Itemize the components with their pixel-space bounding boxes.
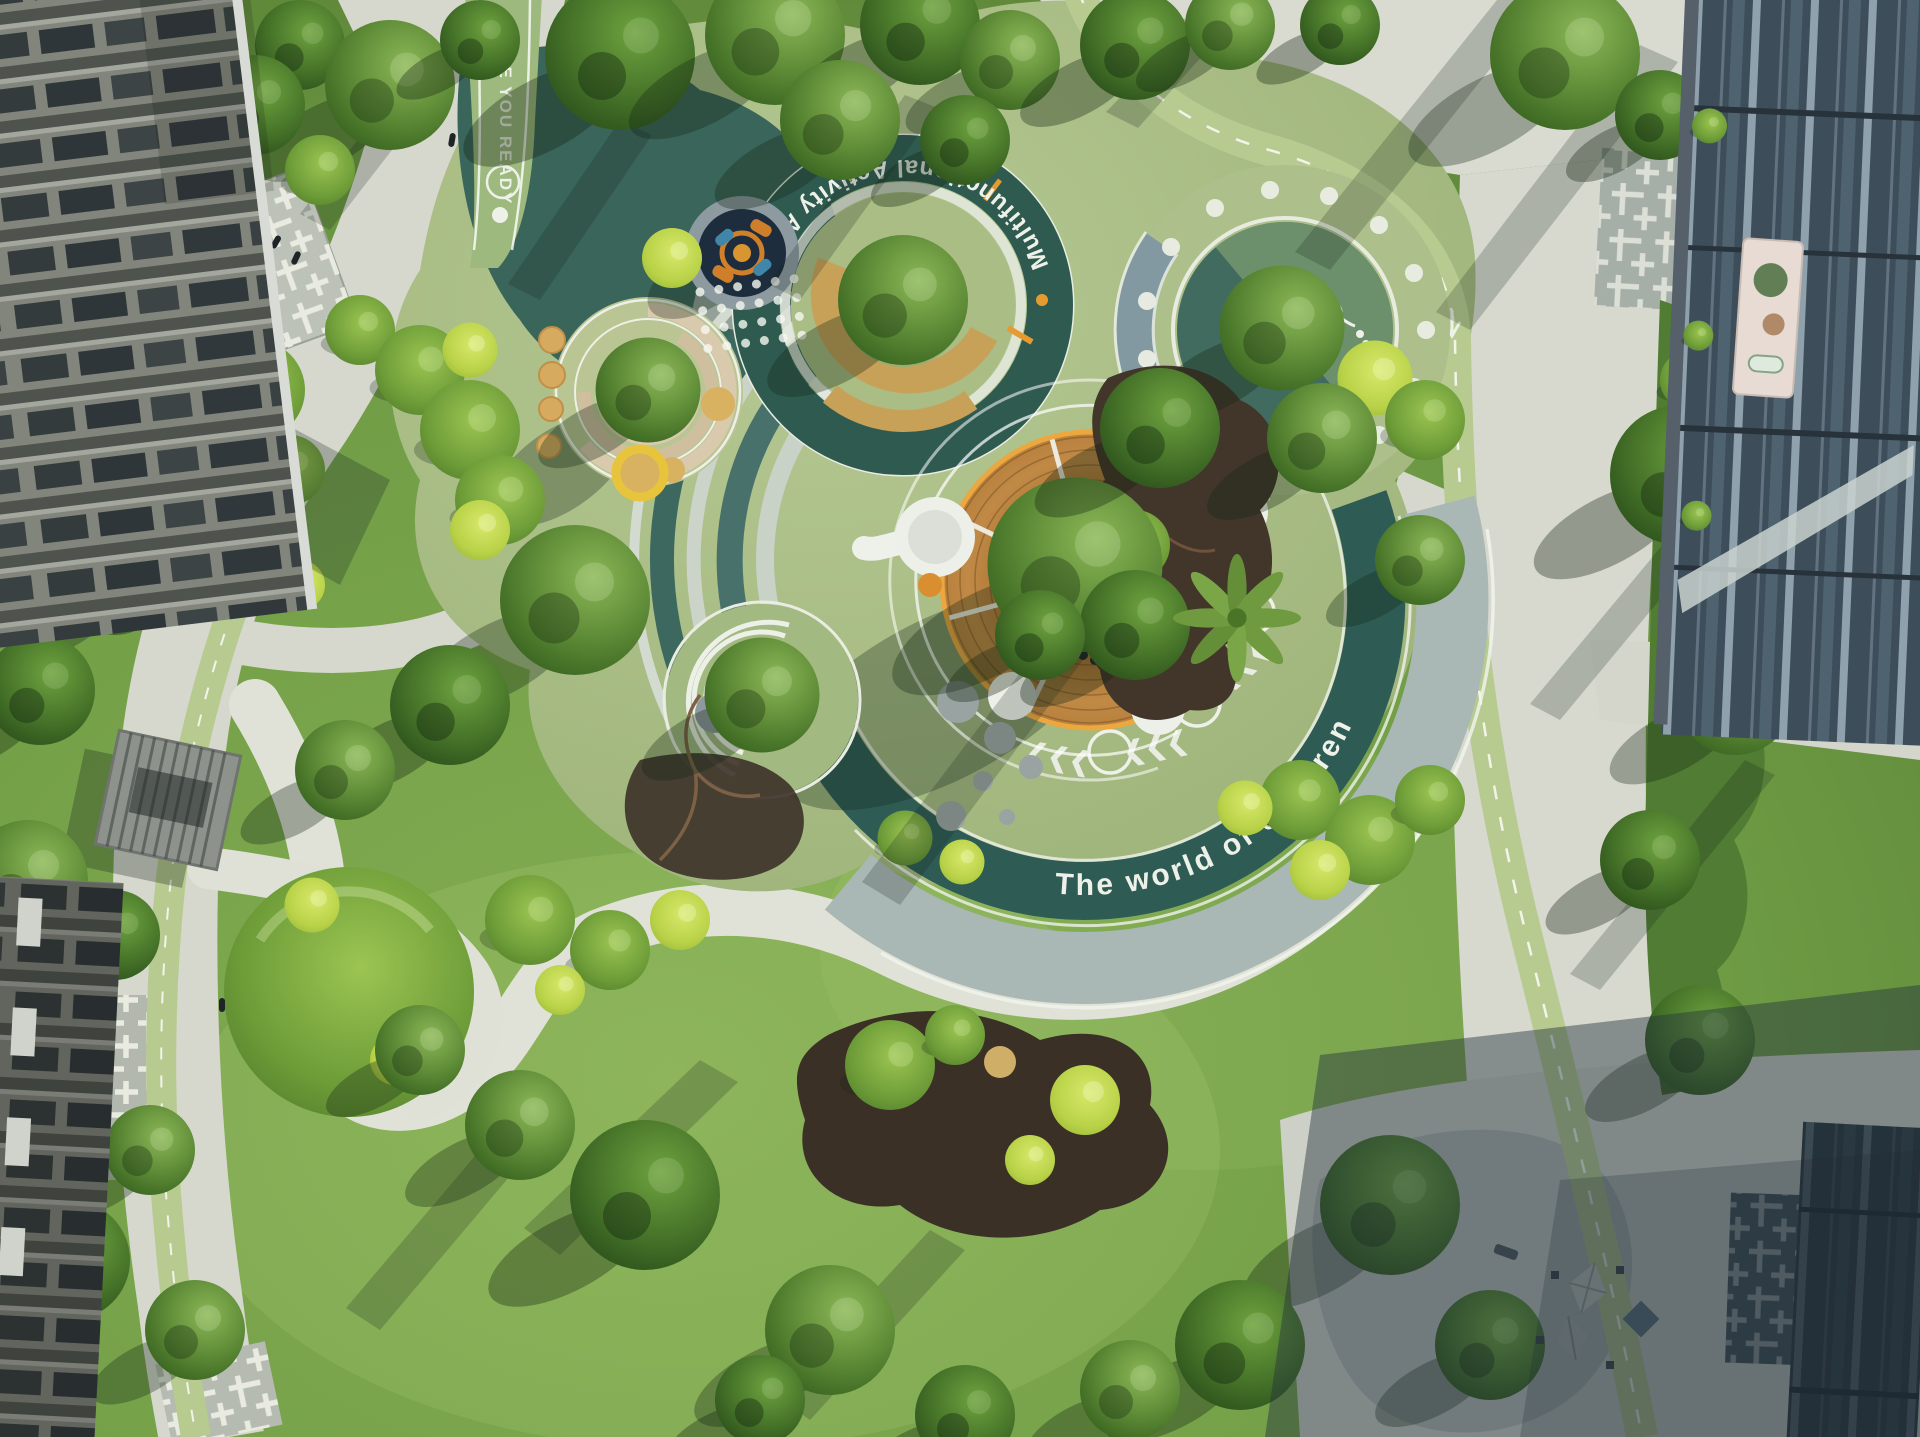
- shop-sign-board: [1733, 238, 1804, 398]
- deck-orange-seat: [918, 573, 942, 597]
- spiral-landing-1: [701, 387, 735, 421]
- ready-ball-mark: [492, 207, 508, 223]
- palm-tree: [1173, 554, 1301, 682]
- yellow-ring-feature: [616, 449, 664, 497]
- aerial-courtyard-photo: ARE YOU READY ❮❮❮ ❮❮❮ ❮❮❮ The world of c…: [0, 0, 1920, 1437]
- carousel-hub: [733, 244, 751, 262]
- sign-pill: [1748, 355, 1783, 373]
- mulch-pad: [984, 1046, 1016, 1078]
- building-shade-deep: [1520, 1150, 1920, 1437]
